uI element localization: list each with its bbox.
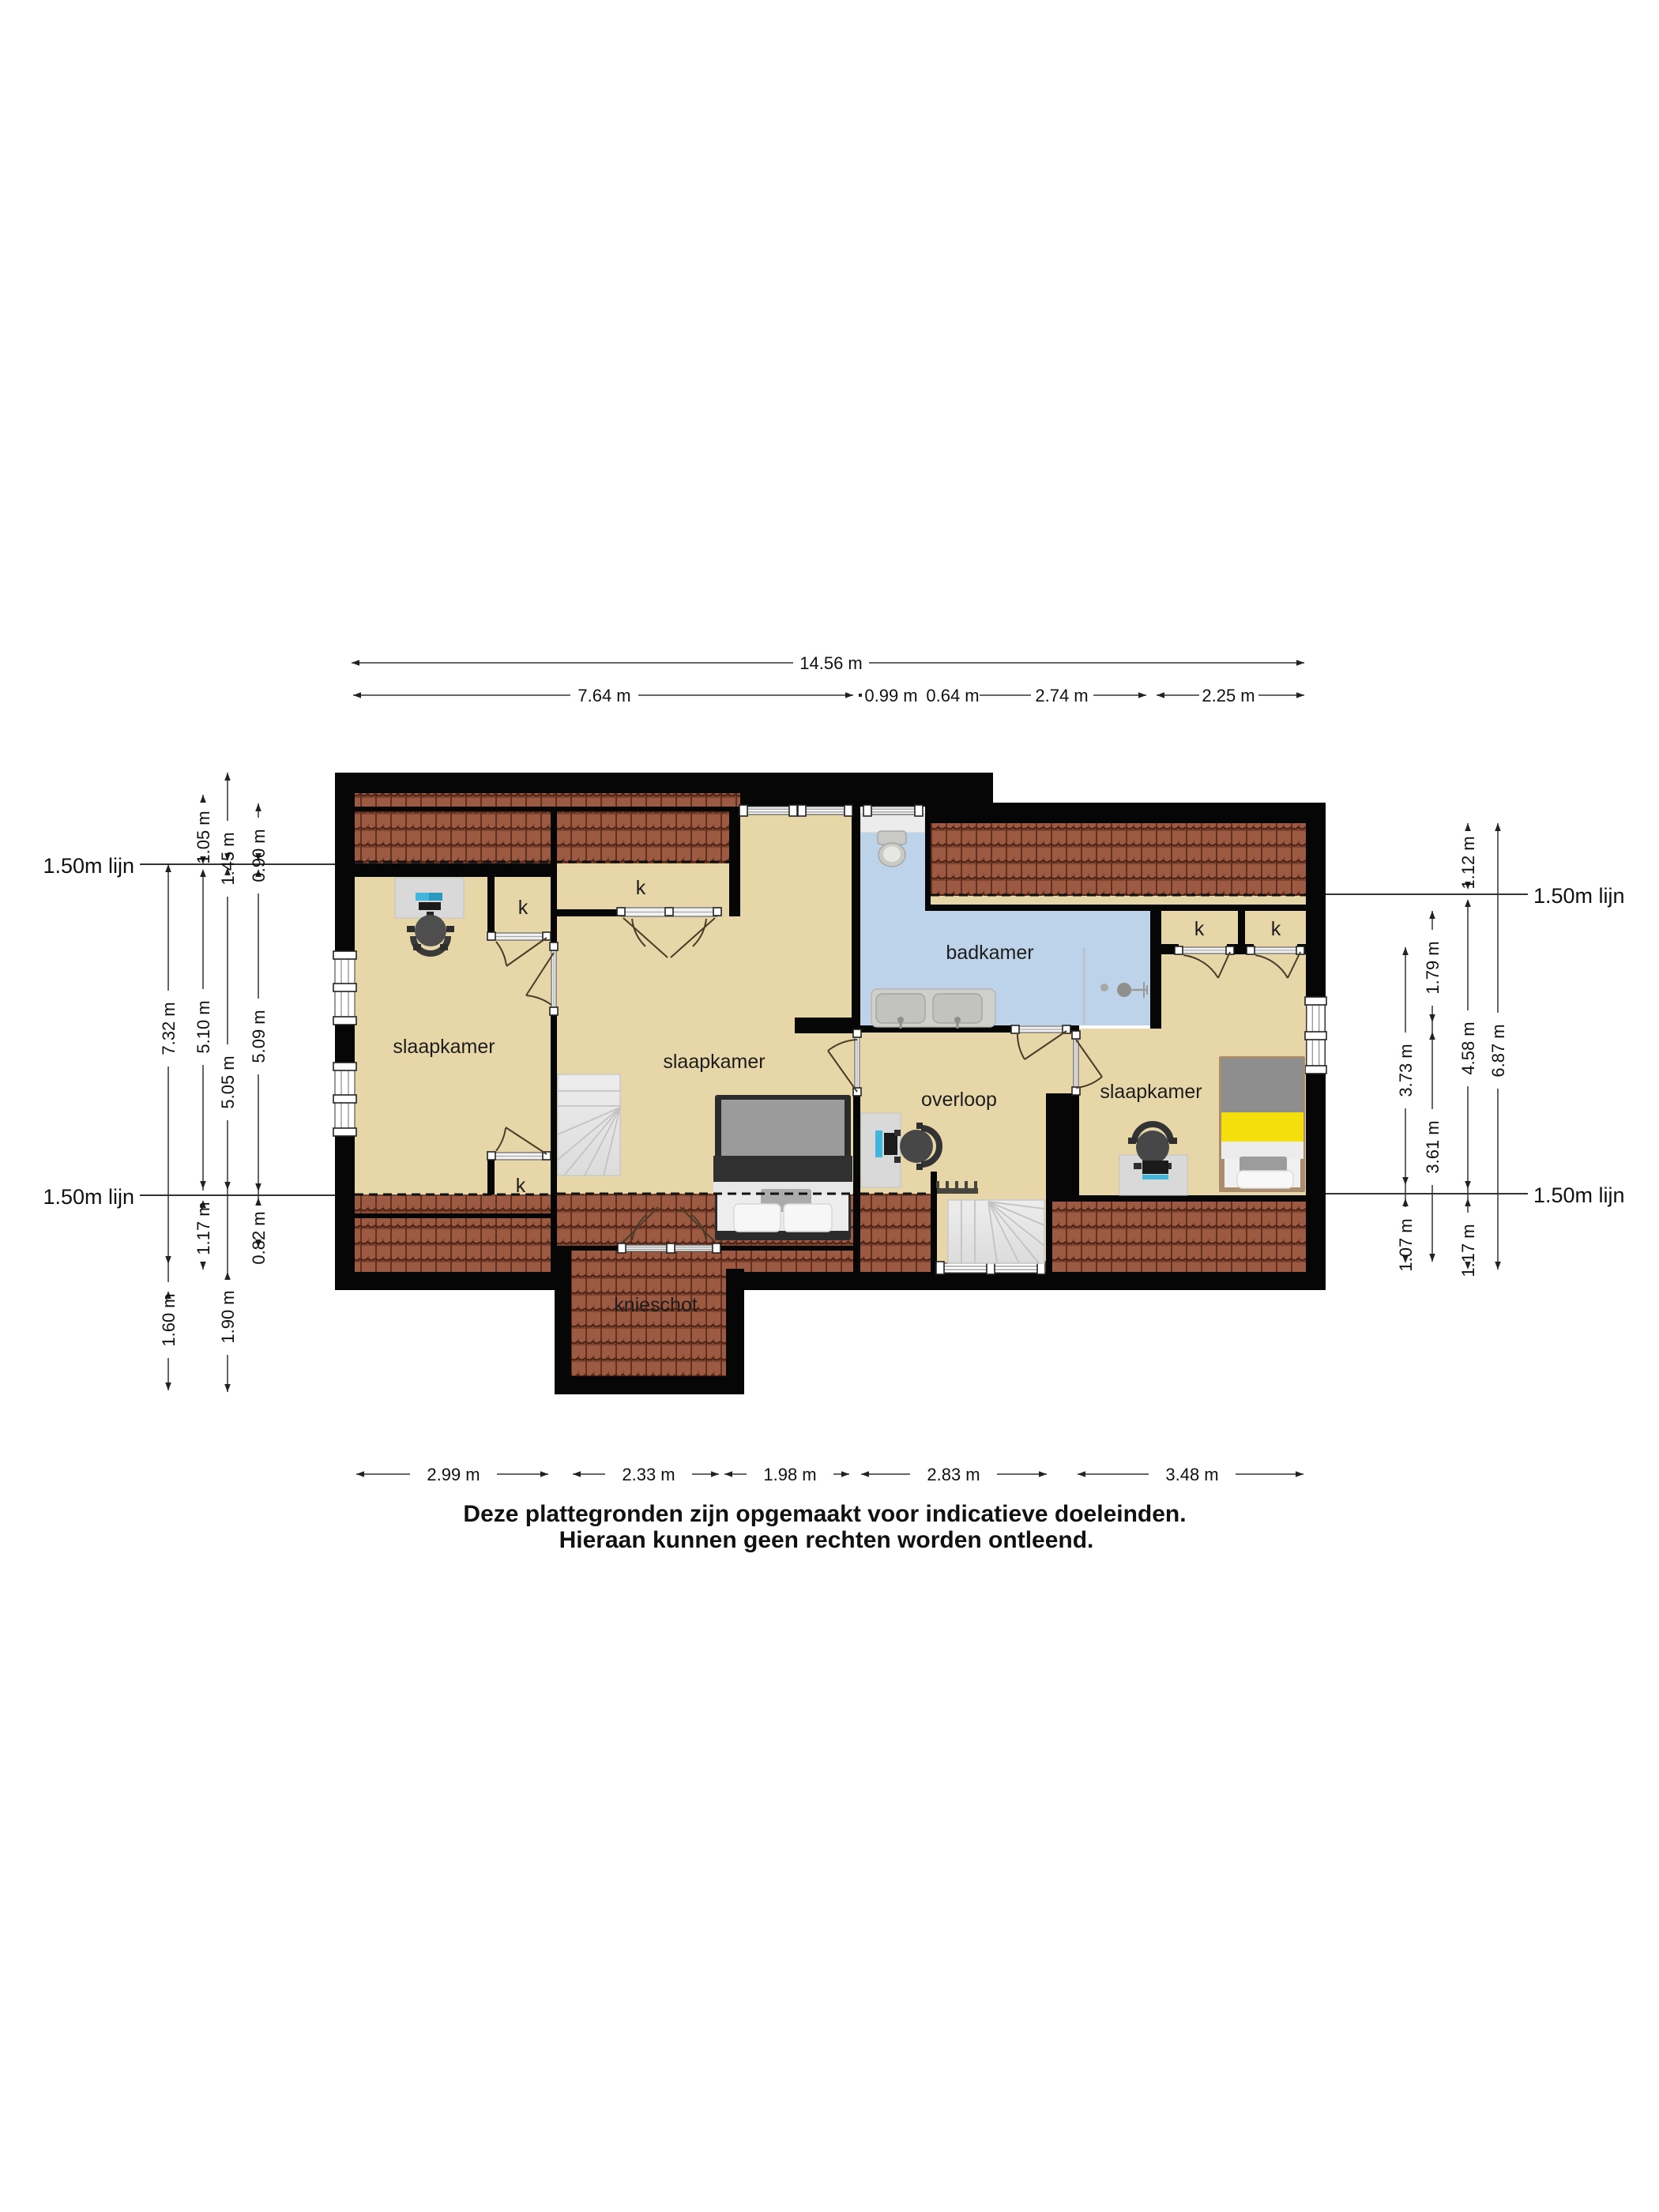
svg-text:knieschot: knieschot <box>614 1294 698 1316</box>
svg-text:3.48 m: 3.48 m <box>1165 1465 1218 1484</box>
svg-text:1.05 m: 1.05 m <box>194 811 213 863</box>
svg-text:slaapkamer: slaapkamer <box>663 1051 765 1073</box>
svg-text:k: k <box>636 877 646 899</box>
svg-text:3.61 m: 3.61 m <box>1423 1120 1443 1173</box>
svg-text:1.98 m: 1.98 m <box>763 1465 816 1484</box>
svg-text:5.05 m: 5.05 m <box>218 1055 238 1108</box>
svg-text:overloop: overloop <box>921 1089 997 1111</box>
svg-text:2.83 m: 2.83 m <box>927 1465 980 1484</box>
svg-text:1.50m lijn: 1.50m lijn <box>1533 1183 1625 1207</box>
svg-text:0.99 m: 0.99 m <box>864 686 917 705</box>
svg-text:3.73 m: 3.73 m <box>1396 1044 1416 1097</box>
svg-text:badkamer: badkamer <box>946 942 1033 964</box>
svg-text:Hieraan kunnen geen rechten wo: Hieraan kunnen geen rechten worden ontle… <box>559 1527 1094 1553</box>
svg-text:1.12 m: 1.12 m <box>1458 836 1478 889</box>
svg-text:slaapkamer: slaapkamer <box>1100 1081 1202 1103</box>
svg-text:5.09 m: 5.09 m <box>249 1010 269 1063</box>
svg-text:14.56 m: 14.56 m <box>799 653 863 673</box>
svg-text:1.17 m: 1.17 m <box>1458 1224 1478 1277</box>
svg-text:0.82 m: 0.82 m <box>249 1211 269 1264</box>
svg-text:7.32 m: 7.32 m <box>159 1002 179 1055</box>
svg-text:1.60 m: 1.60 m <box>159 1293 179 1346</box>
svg-text:4.58 m: 4.58 m <box>1458 1021 1478 1074</box>
svg-text:6.87 m: 6.87 m <box>1488 1024 1508 1077</box>
svg-text:1.50m lijn: 1.50m lijn <box>43 1185 134 1209</box>
svg-text:7.64 m: 7.64 m <box>577 686 630 705</box>
svg-text:1.79 m: 1.79 m <box>1423 941 1443 994</box>
svg-text:2.33 m: 2.33 m <box>622 1465 675 1484</box>
svg-text:1.50m lijn: 1.50m lijn <box>1533 884 1625 908</box>
svg-text:2.25 m: 2.25 m <box>1202 686 1255 705</box>
svg-text:2.74 m: 2.74 m <box>1035 686 1088 705</box>
svg-text:1.17 m: 1.17 m <box>194 1202 213 1255</box>
svg-text:1.45 m: 1.45 m <box>218 832 238 885</box>
svg-text:k: k <box>1194 918 1205 940</box>
svg-text:5.10 m: 5.10 m <box>194 1000 213 1053</box>
svg-text:1.07 m: 1.07 m <box>1396 1218 1416 1271</box>
svg-text:1.90 m: 1.90 m <box>218 1290 238 1343</box>
svg-text:0.64 m: 0.64 m <box>926 686 979 705</box>
svg-text:Deze plattegronden zijn opgema: Deze plattegronden zijn opgemaakt voor i… <box>463 1501 1186 1527</box>
svg-text:0.90 m: 0.90 m <box>249 829 269 882</box>
svg-text:k: k <box>518 897 529 919</box>
svg-text:slaapkamer: slaapkamer <box>393 1036 495 1058</box>
svg-text:2.99 m: 2.99 m <box>427 1465 480 1484</box>
svg-text:1.50m lijn: 1.50m lijn <box>43 854 134 878</box>
svg-text:k: k <box>1271 918 1281 940</box>
svg-text:k: k <box>516 1175 526 1197</box>
